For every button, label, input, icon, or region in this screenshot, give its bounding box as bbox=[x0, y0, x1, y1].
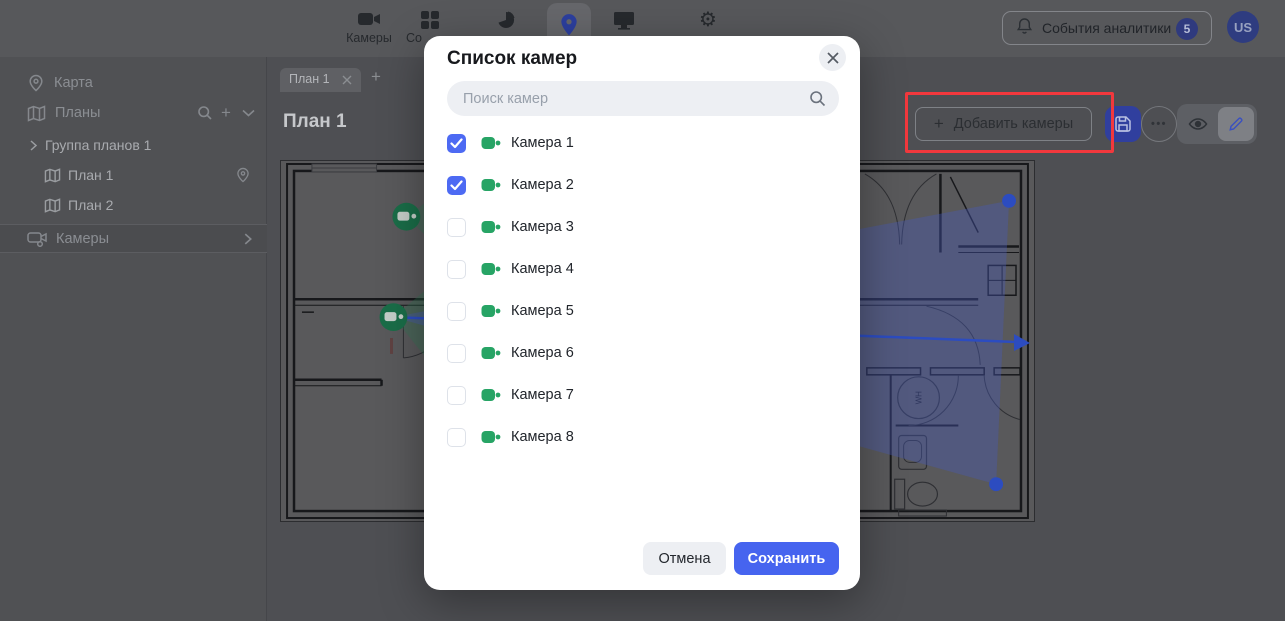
sidebar-label-cameras: Камеры bbox=[56, 231, 109, 247]
chevron-right-icon[interactable] bbox=[30, 140, 37, 151]
tab-close-icon[interactable] bbox=[342, 75, 352, 85]
sidebar-item-plan-group[interactable]: Группа планов 1 bbox=[0, 132, 267, 158]
camera-row-label: Камера 7 bbox=[511, 387, 574, 403]
camera-row-label: Камера 8 bbox=[511, 429, 574, 445]
sidebar-item-plans[interactable]: Планы + bbox=[0, 100, 267, 126]
camera-row[interactable]: Камера 7 bbox=[447, 374, 839, 416]
camera-icon bbox=[481, 346, 501, 360]
sidebar-item-plan2[interactable]: План 2 bbox=[0, 192, 267, 218]
nav-label-truncated: Со bbox=[406, 31, 422, 45]
camera-checkbox[interactable] bbox=[447, 302, 466, 321]
location-pin-icon bbox=[558, 13, 580, 37]
view-mode-button[interactable] bbox=[1188, 114, 1208, 139]
sidebar-label-plan-group: Группа планов 1 bbox=[45, 137, 151, 153]
ellipsis-icon: ••• bbox=[1151, 118, 1167, 130]
monitor-icon bbox=[613, 10, 635, 35]
cancel-button[interactable]: Отмена bbox=[643, 542, 726, 575]
cameras-group-icon bbox=[27, 231, 47, 247]
camera-row-label: Камера 6 bbox=[511, 345, 574, 361]
more-options-button[interactable]: ••• bbox=[1141, 106, 1177, 142]
analytics-events-button[interactable]: События аналитики 5 bbox=[1002, 11, 1212, 45]
page-title: План 1 bbox=[283, 111, 347, 133]
videocam-icon bbox=[357, 10, 381, 33]
camera-checkbox[interactable] bbox=[447, 218, 466, 237]
camera-search-input[interactable] bbox=[463, 81, 793, 116]
camera-checkbox[interactable] bbox=[447, 344, 466, 363]
camera-checkbox[interactable] bbox=[447, 176, 466, 195]
sidebar-item-map[interactable]: Карта bbox=[0, 70, 267, 96]
camera-checkbox[interactable] bbox=[447, 428, 466, 447]
camera-row-label: Камера 2 bbox=[511, 177, 574, 193]
camera-icon bbox=[481, 178, 501, 192]
camera-icon bbox=[481, 136, 501, 150]
tab-plan1[interactable]: План 1 bbox=[280, 68, 361, 92]
sidebar-label-map: Карта bbox=[54, 75, 93, 91]
camera-icon bbox=[481, 430, 501, 444]
sidebar-label-plan1: План 1 bbox=[68, 167, 113, 183]
tab-add-icon[interactable]: + bbox=[371, 67, 381, 87]
chevron-right-icon[interactable] bbox=[244, 233, 252, 245]
analytics-events-label: События аналитики bbox=[1042, 20, 1171, 36]
check-icon bbox=[450, 180, 463, 191]
camera-row[interactable]: Камера 1 bbox=[447, 122, 839, 164]
location-pin-icon bbox=[28, 74, 44, 92]
sidebar-item-plan1[interactable]: План 1 bbox=[0, 162, 267, 188]
map-icon bbox=[44, 198, 61, 213]
eye-icon bbox=[1188, 114, 1208, 134]
pencil-icon bbox=[1228, 116, 1244, 132]
check-icon bbox=[450, 138, 463, 149]
add-plan-icon[interactable]: + bbox=[221, 103, 231, 123]
sidebar-item-cameras[interactable]: Камеры bbox=[0, 224, 267, 253]
search-icon[interactable] bbox=[197, 105, 213, 121]
gear-icon: ⚙ bbox=[699, 7, 717, 31]
camera-list: Камера 1 Камера 2 Камера 3 Камера 4 bbox=[447, 122, 839, 458]
camera-row[interactable]: Камера 5 bbox=[447, 290, 839, 332]
sidebar-label-plan2: План 2 bbox=[68, 197, 113, 213]
save-button[interactable]: Сохранить bbox=[734, 542, 839, 575]
app-window: Камеры Со ⚙ События ан bbox=[0, 0, 1285, 621]
tab-plan1-label: План 1 bbox=[289, 72, 330, 86]
sidebar: Карта Планы + Группа планов 1 П bbox=[0, 57, 267, 621]
camera-checkbox[interactable] bbox=[447, 134, 466, 153]
camera-row[interactable]: Камера 3 bbox=[447, 206, 839, 248]
camera-list-modal: Список камер Камера 1 Камера 2 bbox=[424, 36, 860, 590]
camera-icon bbox=[481, 304, 501, 318]
fov-handle-top[interactable] bbox=[1002, 194, 1016, 208]
fov-handle-bottom[interactable] bbox=[989, 477, 1003, 491]
bell-icon bbox=[1016, 17, 1033, 40]
camera-row-label: Камера 3 bbox=[511, 219, 574, 235]
camera-row[interactable]: Камера 6 bbox=[447, 332, 839, 374]
camera-row-label: Камера 4 bbox=[511, 261, 574, 277]
widgets-icon bbox=[420, 10, 440, 35]
camera-checkbox[interactable] bbox=[447, 386, 466, 405]
close-icon bbox=[827, 52, 839, 64]
user-avatar[interactable]: US bbox=[1227, 11, 1259, 43]
camera-marker-1[interactable] bbox=[392, 203, 420, 231]
camera-row[interactable]: Камера 8 bbox=[447, 416, 839, 458]
nav-item-cameras[interactable]: Камеры bbox=[338, 0, 400, 57]
modal-footer: Отмена Сохранить bbox=[643, 542, 839, 575]
chevron-down-icon[interactable] bbox=[242, 109, 255, 117]
camera-icon bbox=[481, 262, 501, 276]
camera-icon bbox=[481, 388, 501, 402]
annotation-highlight-box bbox=[905, 92, 1114, 153]
map-icon bbox=[44, 168, 61, 183]
nav-label-cameras: Камеры bbox=[338, 31, 400, 45]
camera-search bbox=[447, 81, 839, 116]
modal-title: Список камер bbox=[447, 46, 577, 72]
camera-row-label: Камера 5 bbox=[511, 303, 574, 319]
location-pin-icon bbox=[236, 167, 250, 183]
search-icon[interactable] bbox=[809, 90, 826, 112]
floppy-icon bbox=[1114, 115, 1132, 133]
camera-row[interactable]: Камера 4 bbox=[447, 248, 839, 290]
events-count-badge: 5 bbox=[1176, 18, 1198, 40]
sidebar-label-plans: Планы bbox=[55, 105, 100, 121]
edit-mode-button[interactable] bbox=[1218, 107, 1254, 141]
pie-chart-icon bbox=[496, 10, 516, 35]
camera-checkbox[interactable] bbox=[447, 260, 466, 279]
camera-row[interactable]: Камера 2 bbox=[447, 164, 839, 206]
view-edit-toggle bbox=[1177, 104, 1257, 144]
map-icon bbox=[27, 105, 46, 122]
camera-row-label: Камера 1 bbox=[511, 135, 574, 151]
modal-close-button[interactable] bbox=[819, 44, 846, 71]
camera-icon bbox=[481, 220, 501, 234]
